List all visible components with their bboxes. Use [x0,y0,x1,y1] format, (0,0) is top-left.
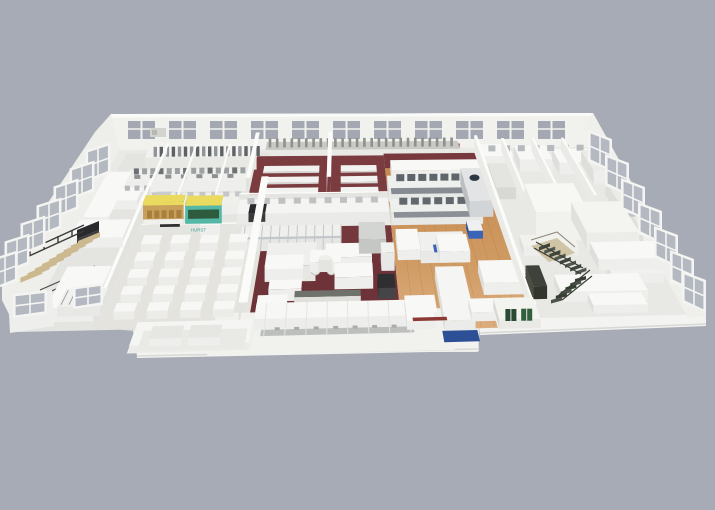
svg-text:HURST: HURST [191,228,207,233]
